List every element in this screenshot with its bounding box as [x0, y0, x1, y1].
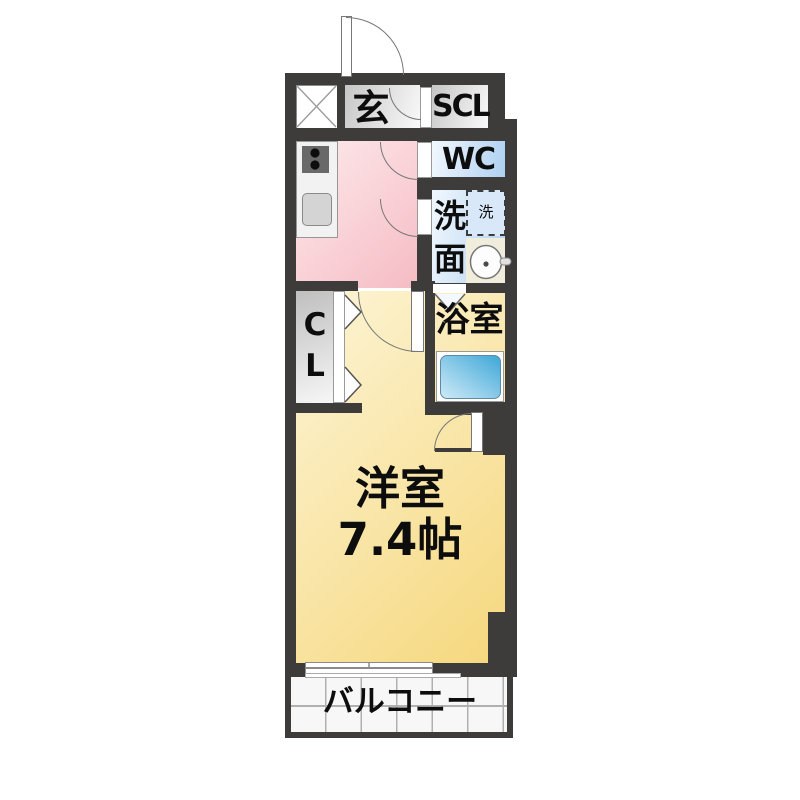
entry-door-swing-arc	[346, 17, 404, 75]
wall-closet-bottom	[296, 403, 362, 413]
window-mid-rail	[306, 667, 432, 669]
washroom-door	[417, 199, 432, 235]
wall-bath-left	[425, 281, 435, 407]
stove-burners-icon	[302, 146, 329, 173]
shoe-closet-door	[420, 87, 432, 128]
toilet-label: WC	[432, 145, 505, 175]
western-room-label: 洋室	[300, 466, 500, 511]
closet-label-line1: C	[297, 305, 333, 346]
western-room-size-label: 7.4帖	[300, 517, 500, 562]
floor-plan: 玄 SCL WC 洗 面 洗 浴室 C L 洋室 7.4帖 バルコニー	[0, 0, 800, 800]
closet-door-track	[333, 291, 345, 403]
wall-wc-washroom	[432, 177, 505, 190]
wall-room-top-left	[296, 281, 358, 291]
wall-entry-bottom	[285, 128, 505, 141]
wall-right	[505, 119, 517, 677]
bathtub-icon	[440, 355, 501, 399]
shaft-box	[296, 85, 339, 130]
window-sill	[305, 673, 461, 678]
vanity-counter	[466, 238, 507, 284]
storage-door-leaf	[471, 412, 483, 452]
balcony-label: バルコニー	[287, 687, 513, 718]
wall-pipe-space-block	[483, 402, 517, 455]
washroom-label-line2: 面	[433, 238, 467, 281]
genkan-label: 玄	[345, 90, 397, 127]
wall-left	[285, 73, 296, 677]
washroom-label-line1: 洗	[433, 195, 467, 238]
shoe-closet-label: SCL	[432, 92, 488, 122]
kitchen-sink-icon	[302, 193, 332, 226]
washroom-label: 洗 面	[433, 195, 467, 281]
washing-machine-label: 洗	[466, 205, 506, 220]
wall-genkan-left	[337, 83, 345, 128]
closet-label: C L	[297, 305, 333, 387]
toilet-door	[417, 142, 432, 178]
bathroom-folding-door-opening	[433, 284, 466, 293]
bathroom-label: 浴室	[432, 303, 507, 337]
wall-scl-right	[488, 73, 505, 134]
closet-label-line2: L	[297, 346, 333, 387]
